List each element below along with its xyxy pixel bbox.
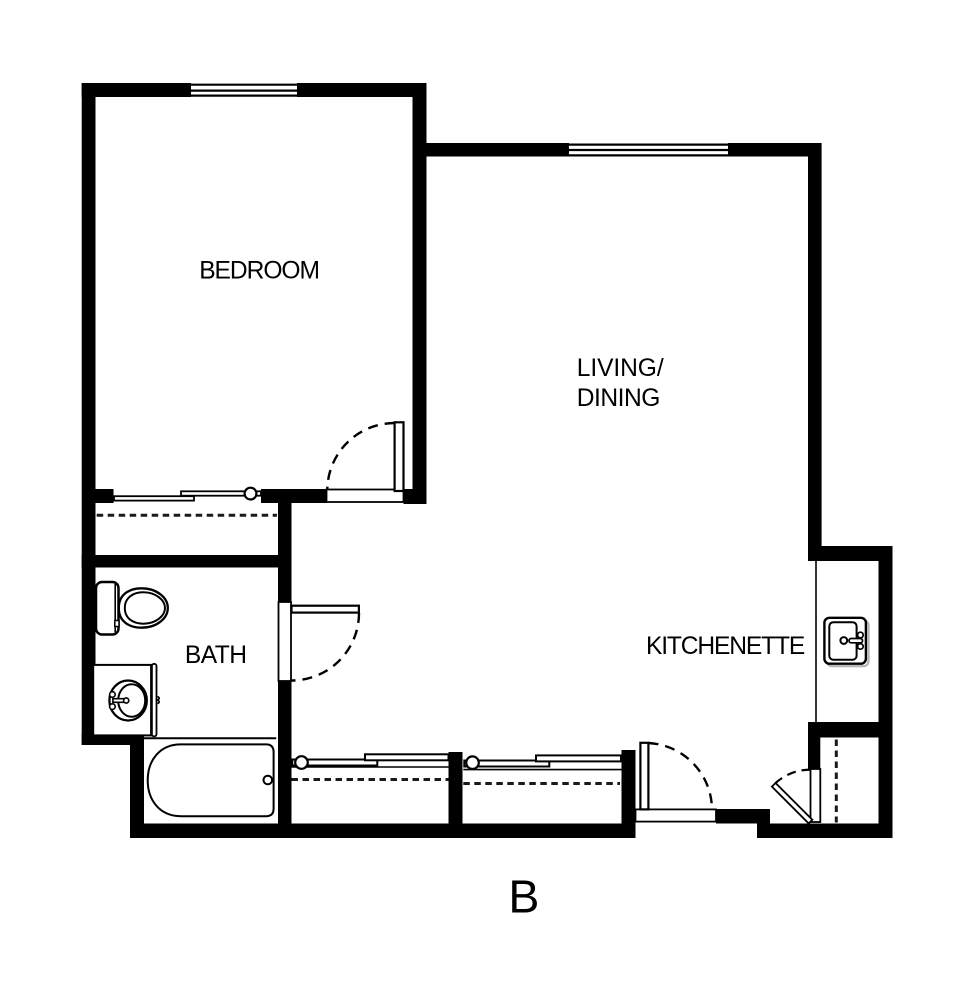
svg-text:BEDROOM: BEDROOM [199, 258, 319, 285]
svg-text:B: B [508, 871, 539, 923]
svg-text:BATH: BATH [185, 642, 247, 669]
svg-text:KITCHENETTE: KITCHENETTE [646, 633, 805, 660]
svg-text:LIVING/: LIVING/ [577, 355, 664, 382]
svg-text:DINING: DINING [577, 385, 660, 412]
